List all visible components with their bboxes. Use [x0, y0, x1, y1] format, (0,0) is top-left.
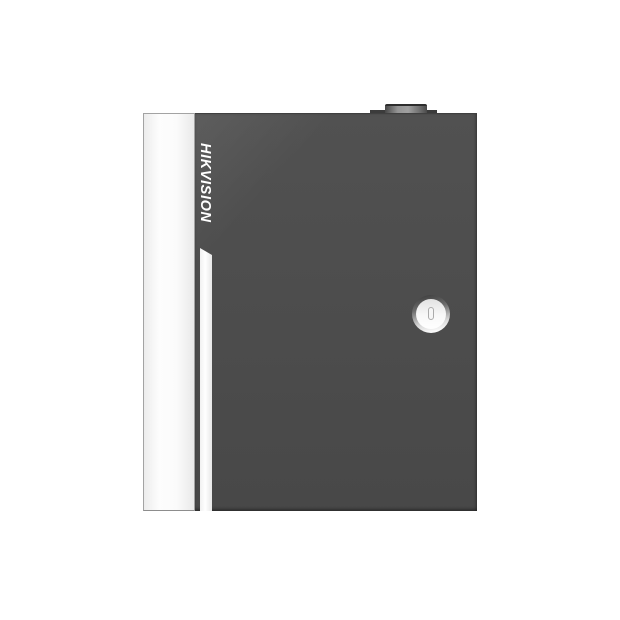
product-photo: HIKVISION — [0, 0, 620, 620]
accent-stripe — [200, 248, 212, 511]
cam-lock — [412, 295, 450, 333]
side-panel — [143, 113, 195, 511]
keyhole-icon — [428, 307, 434, 320]
brand-logo: HIKVISION — [197, 143, 213, 238]
enclosure: HIKVISION — [143, 113, 477, 511]
front-door: HIKVISION — [195, 113, 477, 511]
lock-face — [416, 299, 446, 329]
